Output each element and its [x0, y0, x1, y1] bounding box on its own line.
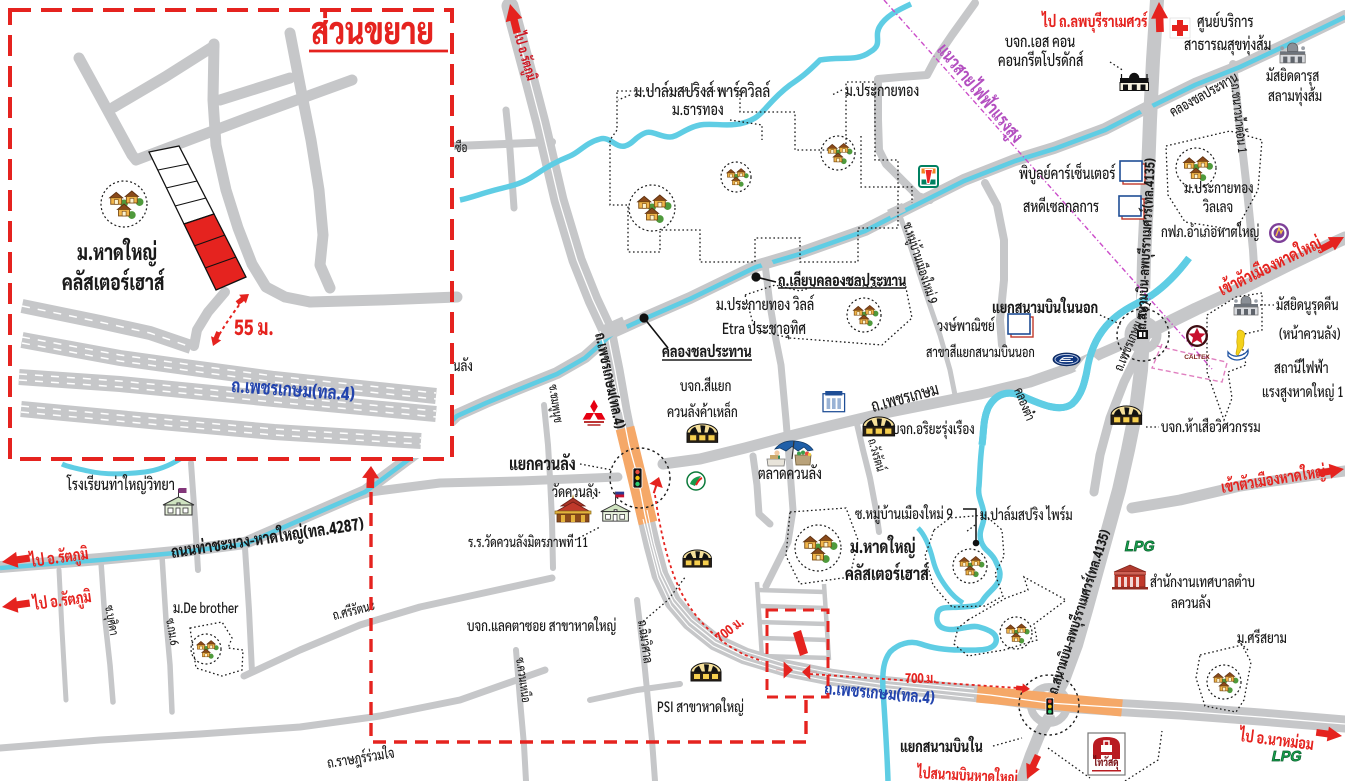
svg-text:CALTEX: CALTEX [1184, 354, 1210, 361]
